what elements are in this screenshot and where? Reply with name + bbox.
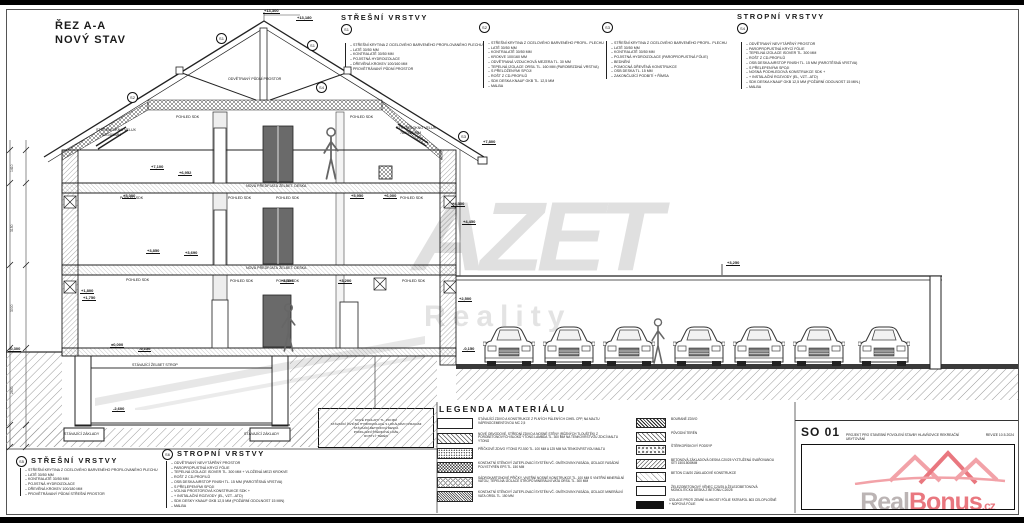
azet-watermark-subtext: Reality	[424, 300, 571, 334]
realbonus-text-bonus: Bonus	[909, 488, 982, 516]
footing-right	[250, 428, 290, 441]
realbonus-roofs-icon	[835, 447, 1020, 485]
king-post	[260, 28, 267, 100]
gutter	[478, 157, 487, 164]
azet-watermark: AZET	[412, 181, 656, 294]
realbonus-text-tld: .cz	[982, 499, 995, 513]
realbonus-watermark: RealBonus.cz	[835, 447, 1020, 513]
architectural-drawing-page: ŘEZ A-ANOVÝ STAV	[0, 0, 1024, 523]
figure-parking	[652, 319, 664, 363]
panel-separators	[437, 402, 795, 513]
exterior-wall-left	[62, 150, 78, 356]
footing-left	[64, 428, 104, 441]
canopy-post	[930, 276, 941, 369]
watermark-swoosh	[95, 330, 445, 410]
openings	[64, 126, 456, 348]
realbonus-text-real: Real	[860, 488, 909, 516]
